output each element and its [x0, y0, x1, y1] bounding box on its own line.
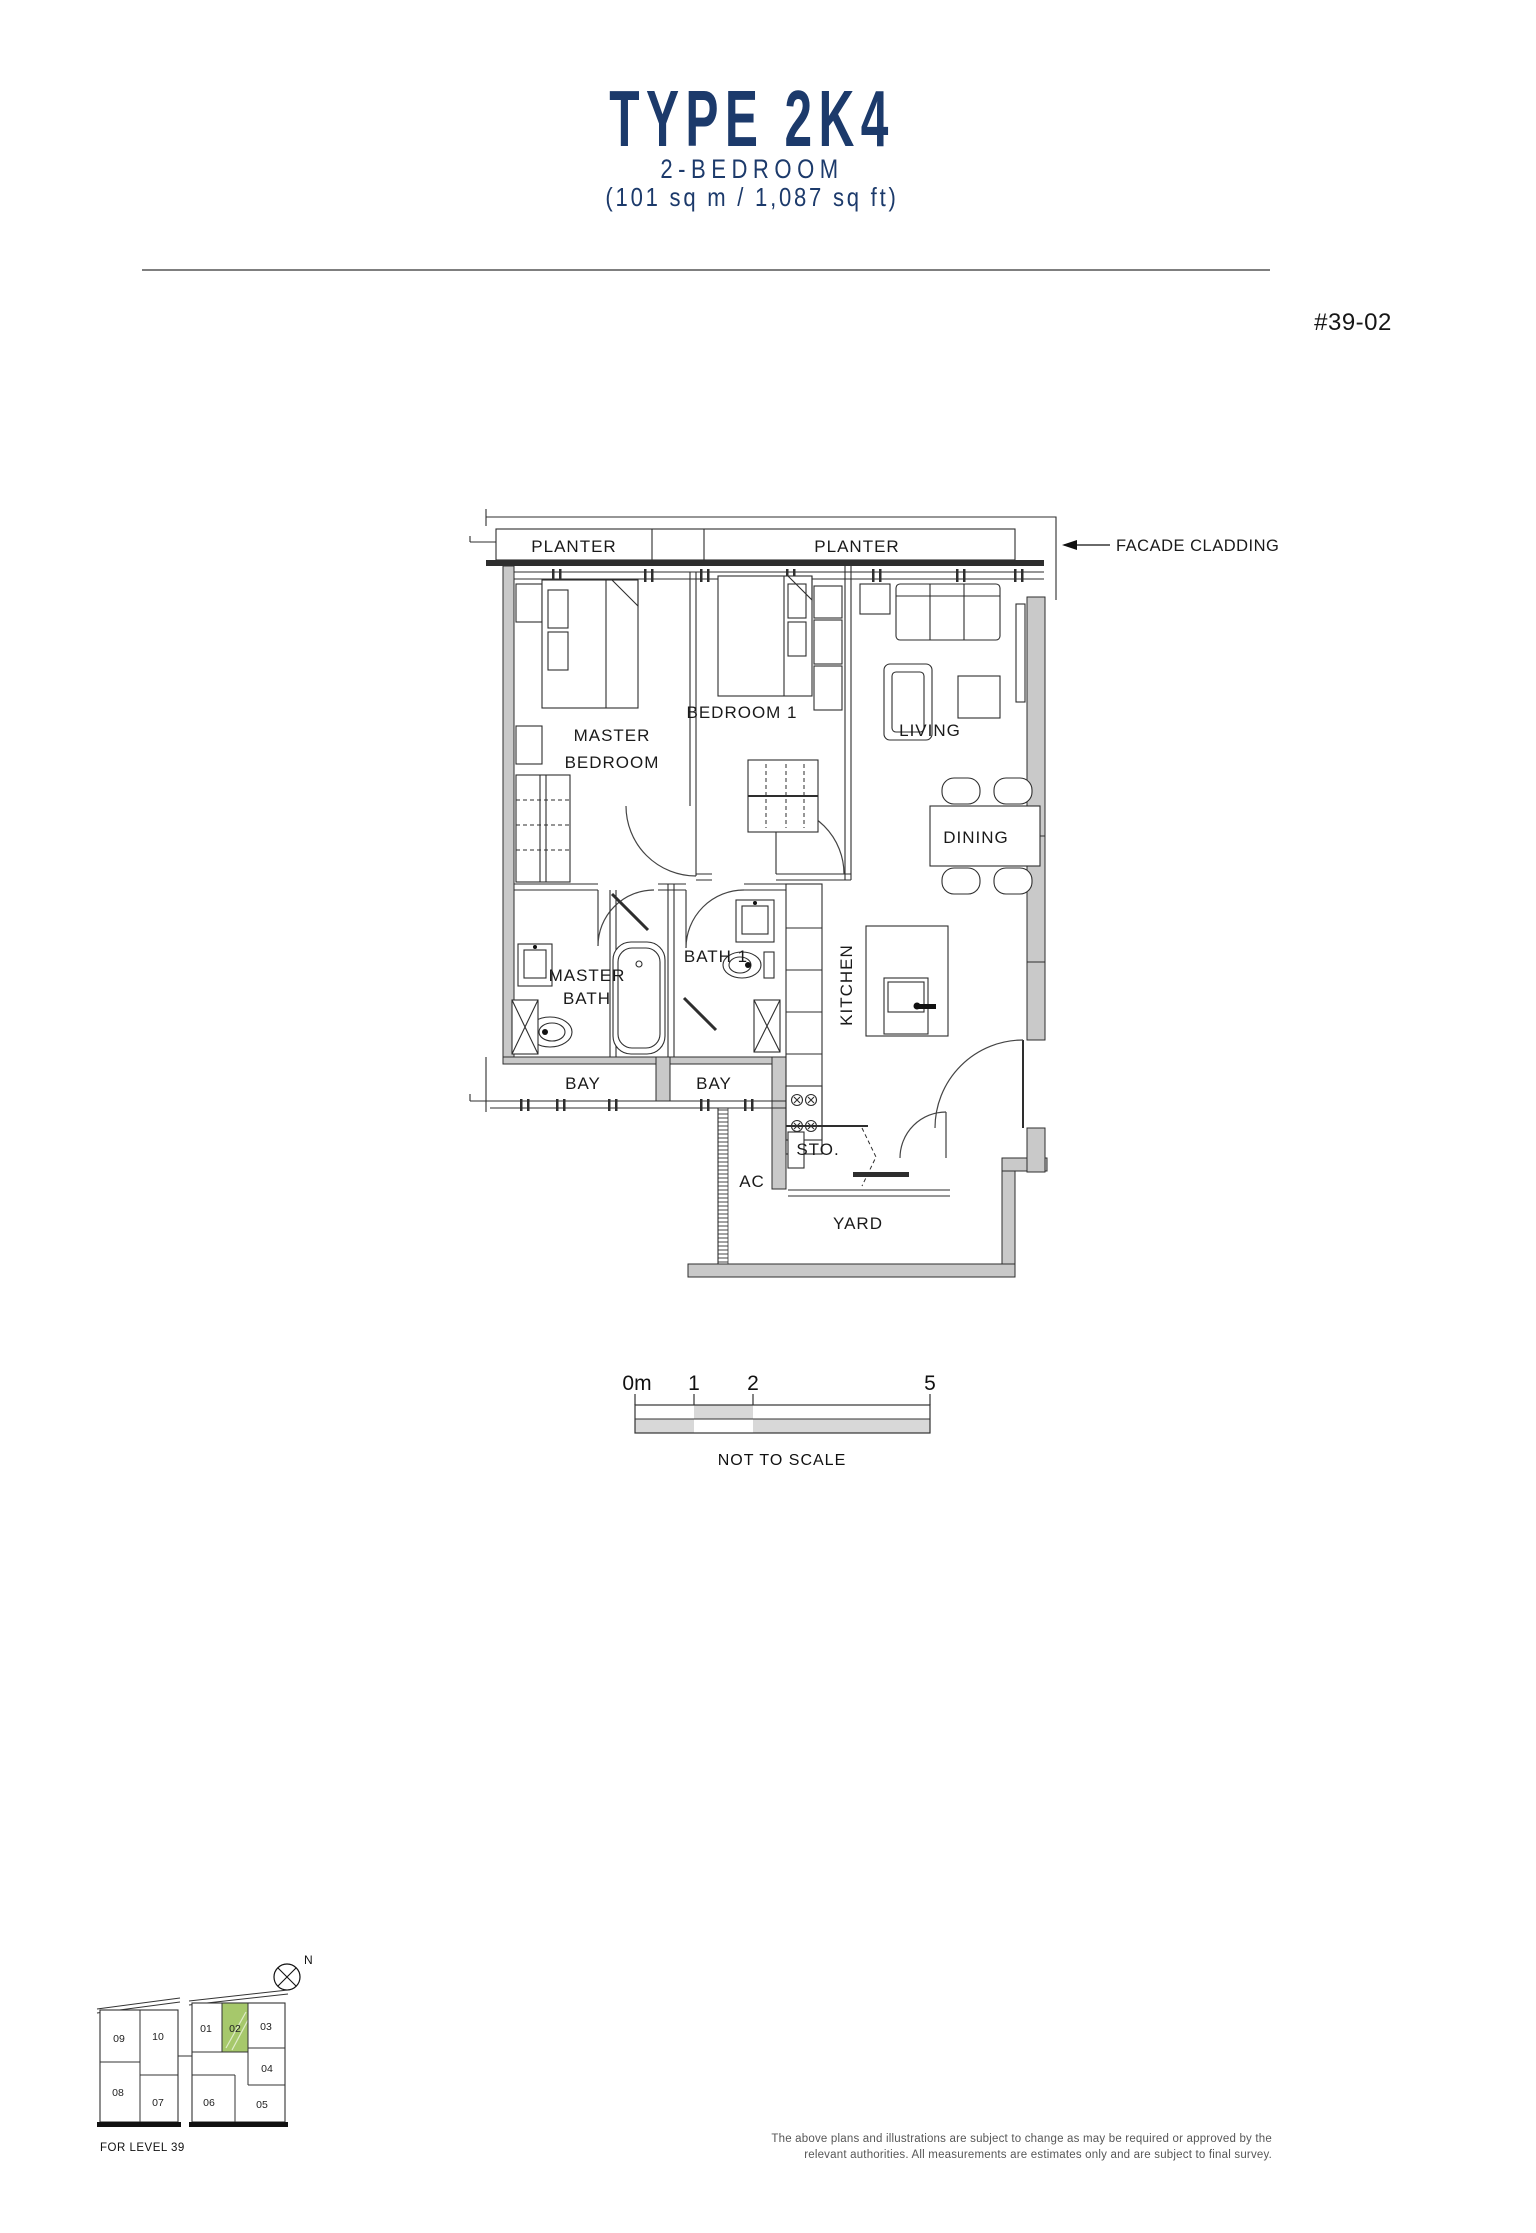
floor-plan: PLANTER PLANTER FACADE CLADDING [470, 509, 1279, 1277]
facade-cladding-label: FACADE CLADDING [1116, 537, 1279, 555]
kitchen-label: KITCHEN [837, 944, 856, 1026]
key-unit-07: 07 [152, 2097, 164, 2109]
key-unit-02: 02 [229, 2023, 241, 2035]
wall-yard-bottom [688, 1264, 1015, 1277]
scale-ticks [635, 1394, 930, 1405]
key-unit-01: 01 [200, 2023, 212, 2035]
ac-label: AC [739, 1172, 765, 1191]
wall-b1-bottom [696, 874, 851, 880]
bath1-fixtures [723, 900, 780, 1052]
north-label: N [304, 1953, 313, 1967]
floorplan-page: TYPE 2K4 2-BEDROOM (101 sq m / 1,087 sq … [0, 0, 1536, 2233]
planter-1-label: PLANTER [531, 537, 616, 556]
master-bedroom-label-1: MASTER [574, 726, 651, 745]
kitchen-island [866, 926, 948, 1036]
bath1-label: BATH 1 [684, 947, 748, 966]
yard-shelf [788, 1190, 950, 1196]
key-unit-08: 08 [112, 2087, 124, 2099]
key-unit-06: 06 [203, 2097, 215, 2109]
facade-tick-left [470, 509, 497, 542]
door-arc-mb [626, 806, 696, 876]
unit-number: #39-02 [1314, 309, 1392, 336]
key-unit-09: 09 [113, 2033, 125, 2045]
scale-tick-1: 1 [688, 1372, 700, 1395]
bay-rail [470, 1057, 786, 1112]
wall-b1-living [845, 566, 851, 880]
page-subtitle: 2-BEDROOM [660, 155, 843, 184]
door-arc-mbath [598, 890, 654, 946]
disclaimer-line-2: relevant authorities. All measurements a… [804, 2149, 1272, 2161]
wall-yard-right [1002, 1170, 1015, 1264]
disclaimer: The above plans and illustrations are su… [771, 2133, 1272, 2161]
master-bath-label-2: BATH [563, 989, 611, 1008]
master-bedroom-label-2: BEDROOM [565, 753, 660, 772]
wall-bath-bottom [503, 1057, 788, 1064]
scale-seg-bottom-1 [635, 1419, 694, 1433]
wall-bath-top [514, 884, 786, 890]
scale-tick-2: 2 [747, 1372, 759, 1395]
page-title: TYPE 2K4 [609, 75, 894, 164]
key-unit-05: 05 [256, 2099, 268, 2111]
planter-2-label: PLANTER [814, 537, 899, 556]
facade-cladding-arrowhead [1062, 540, 1077, 550]
wall-mb-b1 [690, 572, 696, 806]
scale-seg-top [694, 1405, 753, 1419]
bay-stub-right [772, 1057, 786, 1189]
sto-label: STO. [796, 1140, 839, 1159]
scale-note: NOT TO SCALE [718, 1452, 846, 1469]
key-plan-level-note: FOR LEVEL 39 [100, 2142, 185, 2154]
disclaimer-line-1: The above plans and illustrations are su… [771, 2133, 1272, 2145]
dining-label: DINING [943, 828, 1009, 847]
entry-door-arc-2 [900, 1112, 946, 1158]
key-plan-right-block: 01 02 03 04 05 06 [178, 1990, 288, 2127]
key-unit-04: 04 [261, 2063, 273, 2075]
page-header: TYPE 2K4 2-BEDROOM (101 sq m / 1,087 sq … [142, 75, 1392, 336]
ac-louver [718, 1108, 728, 1264]
key-unit-03: 03 [260, 2021, 272, 2033]
door-diag-mbath [612, 894, 648, 930]
sto-bifold-door [862, 1128, 876, 1186]
page-area: (101 sq m / 1,087 sq ft) [605, 183, 898, 212]
bay1-label: BAY [565, 1074, 601, 1093]
key-plan: N 09 10 08 07 01 02 03 04 05 06 [97, 1953, 313, 2154]
bedroom1-label: BEDROOM 1 [686, 703, 797, 722]
living-label: LIVING [899, 721, 961, 740]
living-furniture [860, 584, 1025, 740]
scale-seg-bottom-2 [753, 1419, 930, 1433]
window-sill [486, 560, 1044, 566]
bay2-label: BAY [696, 1074, 732, 1093]
wall-entry-cross [1027, 1128, 1045, 1172]
scale-bar: 0m 1 2 5 NOT TO SCALE [622, 1372, 935, 1469]
master-bath-label-1: MASTER [549, 966, 626, 985]
yard-label: YARD [833, 1214, 883, 1233]
north-compass-icon: N [274, 1953, 313, 1990]
key-plan-left-block: 09 10 08 07 [97, 1998, 181, 2127]
scale-tick-5: 5 [924, 1372, 936, 1395]
entry-door-arc [935, 1040, 1023, 1128]
bay-stub-mid [656, 1057, 670, 1101]
door-arc-bath1 [686, 890, 744, 948]
scale-tick-0: 0m [622, 1372, 651, 1395]
key-unit-10: 10 [152, 2031, 164, 2043]
kitchen-counter [786, 884, 822, 1154]
door-diag-bath1 [684, 998, 716, 1030]
wall-left [503, 566, 514, 1060]
yard-counter-bar [853, 1172, 909, 1177]
